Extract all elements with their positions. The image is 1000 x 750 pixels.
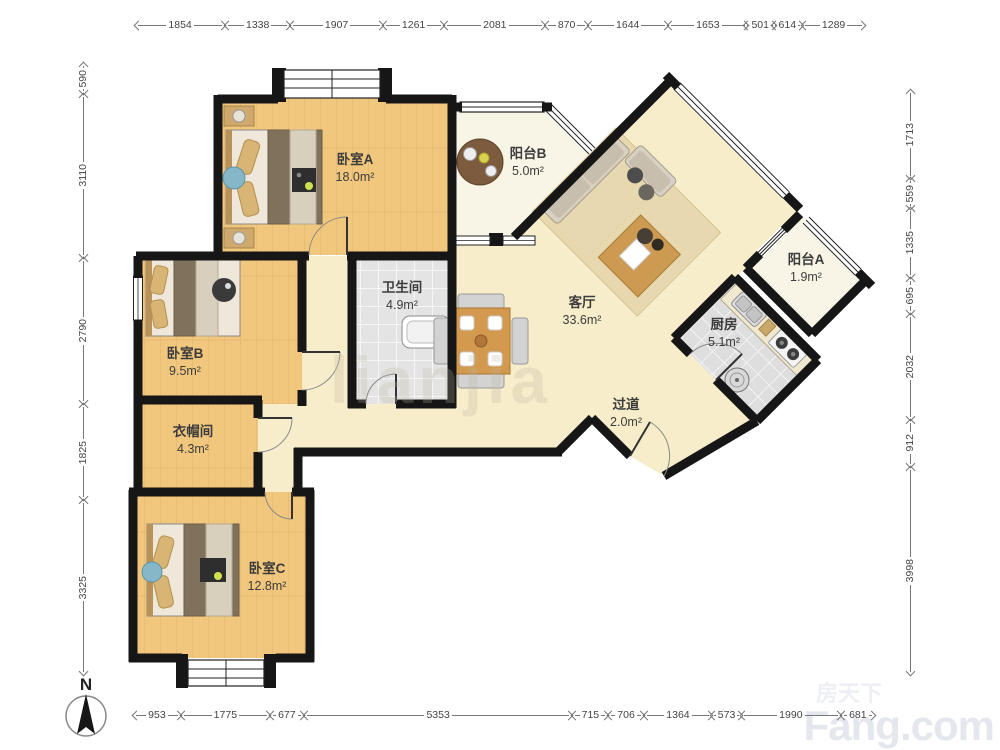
dim-segment: 1990 [741, 708, 841, 722]
dim-segment: 953 [133, 708, 181, 722]
dim-segment: 1335 [903, 208, 917, 277]
dim-value: 1990 [777, 710, 804, 721]
dimensions-top: 1854133819071261208187016441653501614128… [135, 18, 865, 32]
dim-value: 1644 [614, 20, 641, 31]
dim-value: 953 [146, 710, 168, 721]
dim-value: 1364 [664, 710, 691, 721]
dim-value: 1825 [78, 439, 89, 466]
room-area: 5.1m² [708, 334, 740, 350]
dim-value: 695 [905, 285, 916, 307]
balcony-table [457, 139, 503, 185]
bed-c [142, 524, 239, 616]
dim-value: 3325 [78, 574, 89, 601]
dim-segment: 2032 [903, 314, 917, 420]
watermark-center: lianjia [330, 342, 552, 418]
room-area: 33.6m² [563, 312, 602, 328]
dim-segment: 1261 [383, 18, 444, 32]
dim-segment: 1775 [181, 708, 270, 722]
dimensions-bottom: 9531775677535371570613645731990681 [133, 708, 875, 722]
floorplan-page: { "compass": { "label": "N" }, "watermar… [0, 0, 1000, 750]
dim-value: 912 [905, 432, 916, 454]
dim-segment: 1644 [588, 18, 668, 32]
room-label-kitchen: 厨房 5.1m² [708, 316, 740, 350]
dim-segment: 1713 [903, 90, 917, 179]
dim-segment: 912 [903, 420, 917, 467]
dim-value: 2790 [78, 317, 89, 344]
dim-segment: 501 [748, 18, 772, 32]
dim-segment: 1907 [290, 18, 383, 32]
room-area: 4.9m² [382, 297, 423, 313]
room-label-bedroom-c: 卧室C 12.8m² [248, 560, 287, 594]
room-name: 衣帽间 [173, 423, 214, 441]
dim-value: 1713 [905, 121, 916, 148]
room-area: 5.0m² [510, 163, 547, 179]
dim-segment: 715 [572, 708, 608, 722]
north-arrow: N [66, 675, 106, 736]
dim-segment: 1653 [668, 18, 748, 32]
room-label-bedroom-b: 卧室B 9.5m² [167, 345, 204, 379]
dim-segment: 1825 [76, 404, 90, 500]
dim-segment: 559 [903, 179, 917, 208]
dim-value: 1907 [323, 20, 350, 31]
room-name: 过道 [610, 396, 642, 414]
room-name: 卫生间 [382, 279, 423, 297]
dim-segment: 3325 [76, 500, 90, 675]
dimensions-left: 5903110279018253325 [76, 63, 90, 675]
dim-value: 1775 [212, 710, 239, 721]
dim-value: 3110 [78, 162, 89, 189]
room-name: 卧室A [336, 151, 375, 169]
dim-value: 1653 [694, 20, 721, 31]
room-label-hallway: 过道 2.0m² [610, 396, 642, 430]
room-label-closet: 衣帽间 4.3m² [173, 423, 214, 457]
room-label-balcony-a: 阳台A 1.9m² [788, 251, 825, 285]
room-name: 卧室B [167, 345, 204, 363]
dim-segment: 2790 [76, 258, 90, 405]
room-area: 12.8m² [248, 578, 287, 594]
dim-segment: 614 [772, 18, 802, 32]
dim-value: 715 [580, 710, 602, 721]
dim-segment: 2081 [444, 18, 545, 32]
dim-segment: 1338 [225, 18, 290, 32]
dimensions-right: 1713559133569520329123998 [903, 90, 917, 675]
room-area: 1.9m² [788, 269, 825, 285]
room-label-living-room: 客厅 33.6m² [563, 294, 602, 328]
dim-value: 1289 [820, 20, 847, 31]
north-label: N [80, 675, 92, 694]
dim-segment: 5353 [304, 708, 573, 722]
room-label-bathroom: 卫生间 4.9m² [382, 279, 423, 313]
room-area: 9.5m² [167, 363, 204, 379]
room-area: 2.0m² [610, 414, 642, 430]
dim-segment: 1289 [802, 18, 865, 32]
dim-segment: 3110 [76, 94, 90, 258]
dim-segment: 677 [270, 708, 304, 722]
dim-segment: 870 [545, 18, 587, 32]
dim-value: 1338 [244, 20, 271, 31]
room-name: 阳台A [788, 251, 825, 269]
dim-value: 3998 [905, 557, 916, 584]
dim-value: 870 [556, 20, 578, 31]
dim-value: 2081 [481, 20, 508, 31]
room-name: 卧室C [248, 560, 287, 578]
dim-segment: 3998 [903, 467, 917, 675]
dim-segment: 706 [608, 708, 643, 722]
dim-segment: 590 [76, 63, 90, 94]
dim-segment: 681 [841, 708, 875, 722]
dim-value: 706 [615, 710, 637, 721]
room-label-balcony-b: 阳台B 5.0m² [510, 145, 547, 179]
room-area: 18.0m² [336, 169, 375, 185]
dim-value: 1854 [166, 20, 193, 31]
room-label-bedroom-a: 卧室A 18.0m² [336, 151, 375, 185]
room-name: 厨房 [708, 316, 740, 334]
dim-segment: 1364 [644, 708, 712, 722]
dim-segment: 695 [903, 278, 917, 314]
dim-segment: 573 [712, 708, 741, 722]
dim-value: 2032 [905, 353, 916, 380]
dim-value: 1335 [905, 229, 916, 256]
room-name: 阳台B [510, 145, 547, 163]
dim-segment: 1854 [135, 18, 225, 32]
dim-value: 1261 [400, 20, 427, 31]
bed-b [146, 260, 240, 336]
room-area: 4.3m² [173, 441, 214, 457]
dim-value: 5353 [424, 710, 451, 721]
room-name: 客厅 [563, 294, 602, 312]
